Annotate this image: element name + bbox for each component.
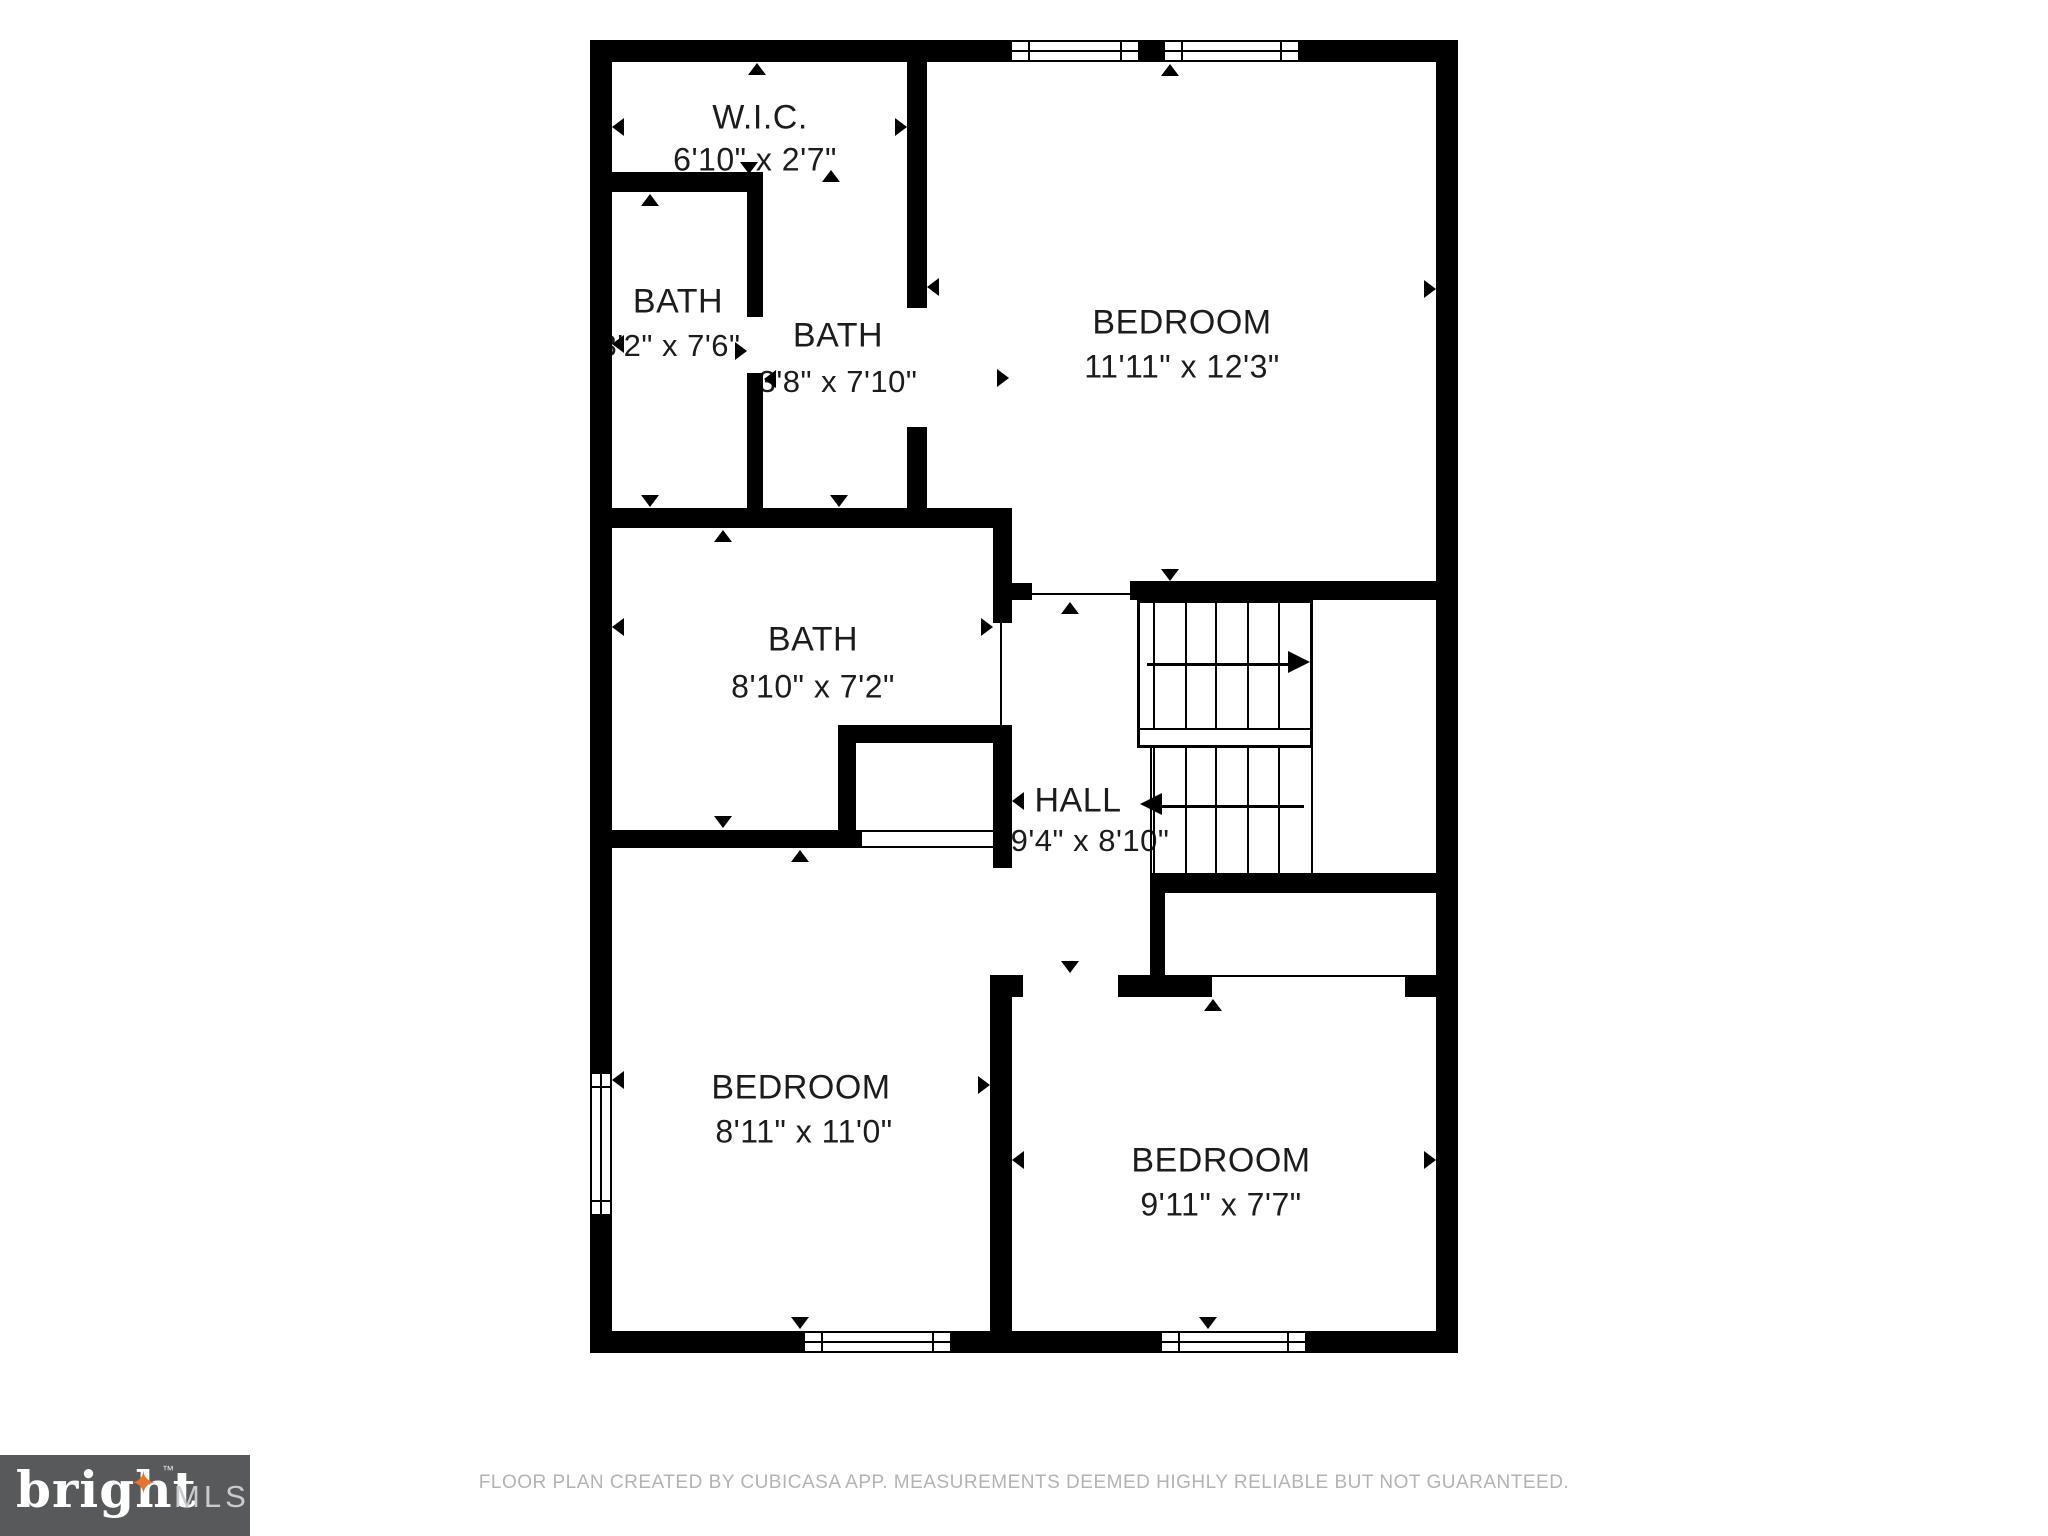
arrow-bedroom-right-top bbox=[1204, 999, 1222, 1011]
room-label-bath-main: BATH bbox=[768, 621, 858, 658]
wall-spine-upper bbox=[993, 528, 1012, 623]
arrow-bedroom-right-left bbox=[1012, 1151, 1024, 1169]
arrow-bedroom-top-left bbox=[927, 278, 939, 296]
arrow-bedroom-right-bottom bbox=[1199, 1317, 1217, 1329]
wall-stair-left-below bbox=[1150, 893, 1165, 975]
window-left bbox=[590, 1072, 612, 1216]
wall-baths-divider-upper bbox=[747, 172, 763, 317]
logo-suffix-text: MLS bbox=[174, 1481, 250, 1512]
window-bottom-2 bbox=[1160, 1331, 1307, 1353]
room-label-bath-middle: BATH bbox=[793, 317, 883, 354]
arrow-door-wic bbox=[740, 162, 758, 174]
floor-plan: W.I.C. 6'10" x 2'7" BATH 3'2" x 7'6" BAT… bbox=[590, 40, 1458, 1353]
arrow-bedroom-left-right bbox=[978, 1076, 990, 1094]
stair-down-arrow-line bbox=[1162, 805, 1304, 808]
arrow-bath-left-left bbox=[612, 335, 624, 353]
arrow-bath-left-right bbox=[735, 342, 747, 360]
room-dims-bath-main: 8'10" x 7'2" bbox=[731, 669, 895, 704]
arrow-bath-main-right bbox=[981, 618, 993, 636]
wall-notch-left bbox=[838, 743, 856, 830]
arrow-bedroom-top-top bbox=[1161, 64, 1179, 76]
stair-lower-top-line bbox=[1150, 746, 1313, 748]
wall-notch-top bbox=[838, 725, 1012, 743]
arrow-bath-main-bottom bbox=[714, 816, 732, 828]
arrow-wic-left bbox=[612, 118, 624, 136]
arrow-door-bedroom-top bbox=[997, 369, 1009, 387]
trademark-symbol: ™ bbox=[162, 1463, 174, 1477]
arrow-hall-left bbox=[1012, 792, 1024, 810]
door-threshold-bedroom-left-b bbox=[862, 846, 993, 848]
arrow-bath-main-left bbox=[612, 618, 624, 636]
window-bottom-1 bbox=[803, 1331, 952, 1353]
stair-up-arrow-head bbox=[1288, 651, 1310, 673]
stair-down-arrow-head bbox=[1140, 793, 1162, 815]
wall-bath-main-top bbox=[590, 508, 1012, 528]
arrow-wic-top bbox=[748, 63, 766, 75]
wall-wic-bottom bbox=[590, 172, 762, 192]
wall-hall-bottom bbox=[1118, 975, 1212, 997]
room-label-bedroom-top: BEDROOM bbox=[1092, 304, 1271, 341]
wall-bedrooms-divider bbox=[990, 997, 1012, 1331]
wall-bath-main-bottom bbox=[590, 830, 862, 848]
arrow-door-bath-middle bbox=[822, 170, 840, 182]
room-dims-hall: 9'4" x 8'10" bbox=[1011, 824, 1170, 858]
room-label-bedroom-left: BEDROOM bbox=[711, 1069, 890, 1106]
wall-bedroom-divider-upper bbox=[907, 40, 927, 308]
wall-hall-stub bbox=[990, 975, 1023, 997]
opening-line-hall-bottom bbox=[1212, 975, 1405, 977]
room-label-bedroom-right: BEDROOM bbox=[1131, 1142, 1310, 1179]
window-top-2 bbox=[1163, 40, 1300, 62]
arrow-bedroom-left-left bbox=[612, 1071, 624, 1089]
room-dims-bedroom-right: 9'11" x 7'7" bbox=[1140, 1187, 1301, 1222]
arrow-bath-left-bottom bbox=[641, 495, 659, 507]
room-dims-bedroom-left: 8'11" x 11'0" bbox=[715, 1114, 892, 1149]
room-dims-bedroom-top: 11'11" x 12'3" bbox=[1084, 349, 1280, 384]
stair-landing-line bbox=[1140, 728, 1310, 730]
arrow-bath-main-top bbox=[714, 530, 732, 542]
wall-hall-bottom-right bbox=[1405, 975, 1436, 997]
wall-baths-divider-lower bbox=[747, 373, 763, 528]
arrow-hall-top bbox=[1061, 602, 1079, 614]
door-threshold-bedroom-left-a bbox=[862, 830, 993, 832]
arrow-bedroom-right-right bbox=[1424, 1151, 1436, 1169]
stair-tread bbox=[1278, 748, 1280, 873]
arrow-bedroom-left-top bbox=[791, 850, 809, 862]
arrow-bath-left-top bbox=[641, 194, 659, 206]
wall-stair-top bbox=[1130, 581, 1458, 600]
disclaimer-text: FLOOR PLAN CREATED BY CUBICASA APP. MEAS… bbox=[0, 1472, 2048, 1494]
bright-mls-logo: bright ✦ ™ MLS bbox=[0, 1455, 250, 1536]
wall-stair-bottom bbox=[1150, 873, 1436, 893]
wall-outer-bottom bbox=[590, 1331, 1458, 1353]
room-dims-bath-middle: 3'8" x 7'10" bbox=[759, 365, 918, 399]
window-top-1 bbox=[1010, 40, 1140, 62]
stair-tread bbox=[1215, 748, 1217, 873]
door-line-bath-main bbox=[1000, 623, 1002, 725]
stair-lower-right-line bbox=[1311, 746, 1313, 875]
arrow-bedroom-top-bottom bbox=[1161, 569, 1179, 581]
arrow-bedroom-left-bottom bbox=[791, 1317, 809, 1329]
room-label-wic: W.I.C. bbox=[712, 99, 808, 136]
arrow-bath-middle-left bbox=[764, 370, 776, 388]
door-line-bedroom-top bbox=[1032, 593, 1130, 595]
room-label-hall: HALL bbox=[1034, 782, 1121, 819]
arrow-bedroom-top-right bbox=[1424, 280, 1436, 298]
stair-tread bbox=[1247, 748, 1249, 873]
wall-spine-stub bbox=[1012, 583, 1032, 600]
wall-outer-right bbox=[1436, 40, 1458, 1353]
arrow-hall-bottom bbox=[1061, 961, 1079, 973]
wall-spine-mid bbox=[993, 725, 1012, 868]
arrow-wic-right bbox=[895, 118, 907, 136]
star-icon: ✦ bbox=[130, 1467, 157, 1499]
stair-tread bbox=[1185, 748, 1187, 873]
room-label-bath-left: BATH bbox=[633, 283, 723, 320]
arrow-bath-middle-bottom bbox=[830, 495, 848, 507]
stair-up-arrow-line bbox=[1147, 663, 1290, 666]
stair-upper-flight bbox=[1137, 600, 1313, 748]
